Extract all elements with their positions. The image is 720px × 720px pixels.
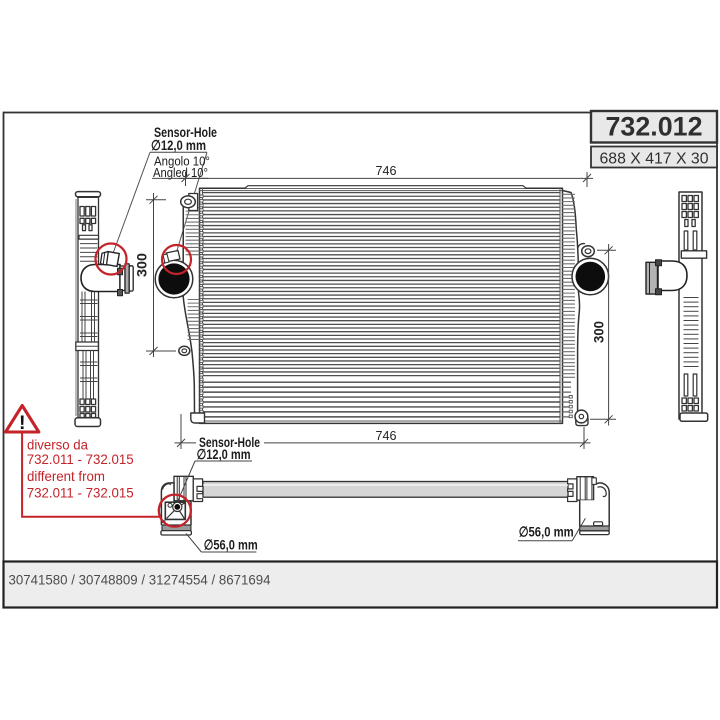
svg-text:732.012: 732.012: [606, 112, 703, 142]
svg-text:746: 746: [376, 164, 397, 178]
svg-text:300: 300: [592, 321, 607, 343]
svg-text:∅12,0 mm: ∅12,0 mm: [151, 137, 206, 153]
svg-text:different from: different from: [27, 468, 105, 484]
svg-text:30741580 / 30748809 / 31274554: 30741580 / 30748809 / 31274554 / 8671694: [9, 573, 271, 588]
svg-text:732.011 - 732.015: 732.011 - 732.015: [27, 451, 134, 467]
svg-text:∅56,0 mm: ∅56,0 mm: [519, 524, 574, 540]
svg-text:688 X 417 X 30: 688 X 417 X 30: [600, 151, 709, 168]
svg-text:!: !: [19, 412, 26, 434]
svg-text:∅12,0 mm: ∅12,0 mm: [197, 446, 251, 462]
svg-text:732.011 - 732.015: 732.011 - 732.015: [27, 485, 134, 501]
svg-text:746: 746: [376, 429, 397, 443]
svg-text:300: 300: [135, 253, 150, 277]
svg-text:∅56,0 mm: ∅56,0 mm: [204, 537, 258, 553]
